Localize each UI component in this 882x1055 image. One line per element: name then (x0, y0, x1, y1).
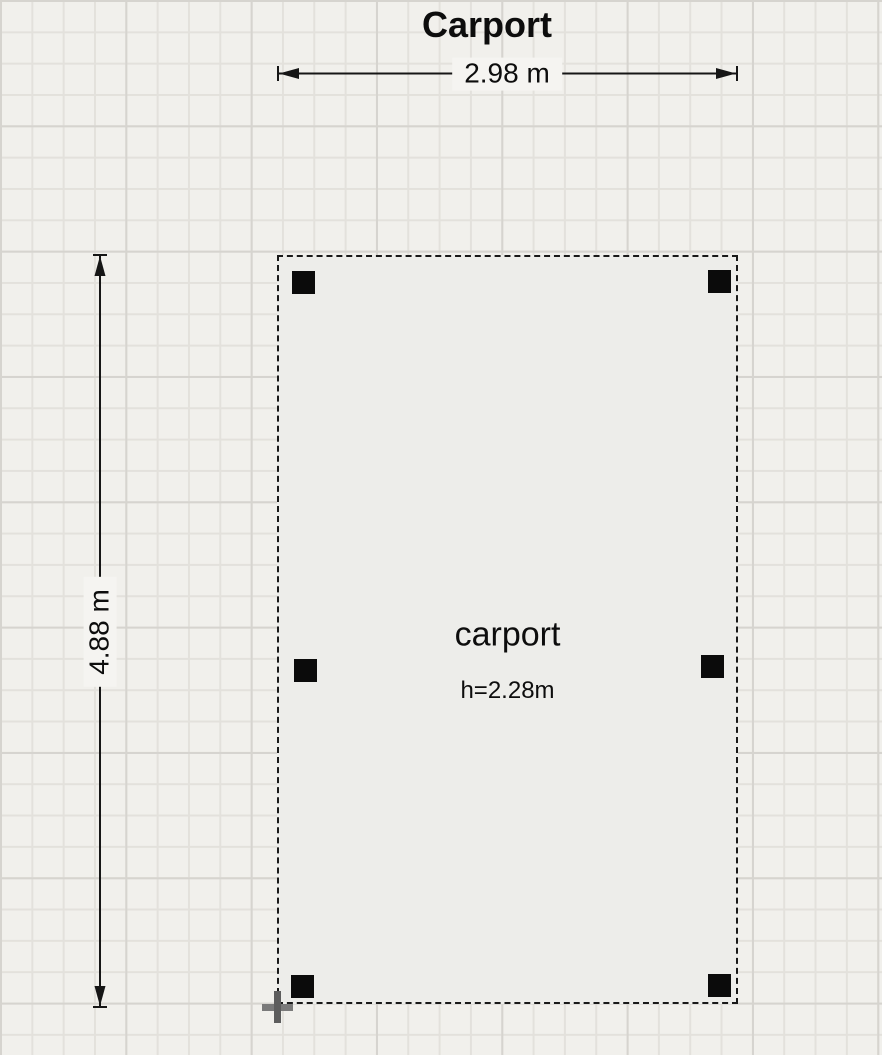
room-height-label: h=2.28m (460, 677, 554, 705)
plan-title: Carport (422, 4, 552, 46)
crosshair-vertical-bar (274, 991, 281, 1023)
plan-canvas[interactable]: Carport 2.98 m 4.88 m carport h=2.28m (0, 0, 882, 1055)
support-post[interactable] (291, 975, 314, 998)
support-post[interactable] (294, 659, 317, 682)
width-dimension-label: 2.98 m (452, 58, 562, 91)
room-name-label: carport (455, 616, 561, 655)
height-dimension-label: 4.88 m (84, 577, 117, 687)
carport-room-area[interactable]: carport h=2.28m (277, 255, 738, 1004)
arrow-left-icon (279, 68, 299, 79)
support-post[interactable] (292, 271, 315, 294)
support-post[interactable] (708, 270, 731, 293)
crosshair-cursor-icon (262, 991, 293, 1023)
arrow-down-icon (95, 986, 106, 1006)
arrow-right-icon (716, 68, 736, 79)
arrow-up-icon (95, 256, 106, 276)
support-post[interactable] (701, 655, 724, 678)
support-post[interactable] (708, 974, 731, 997)
